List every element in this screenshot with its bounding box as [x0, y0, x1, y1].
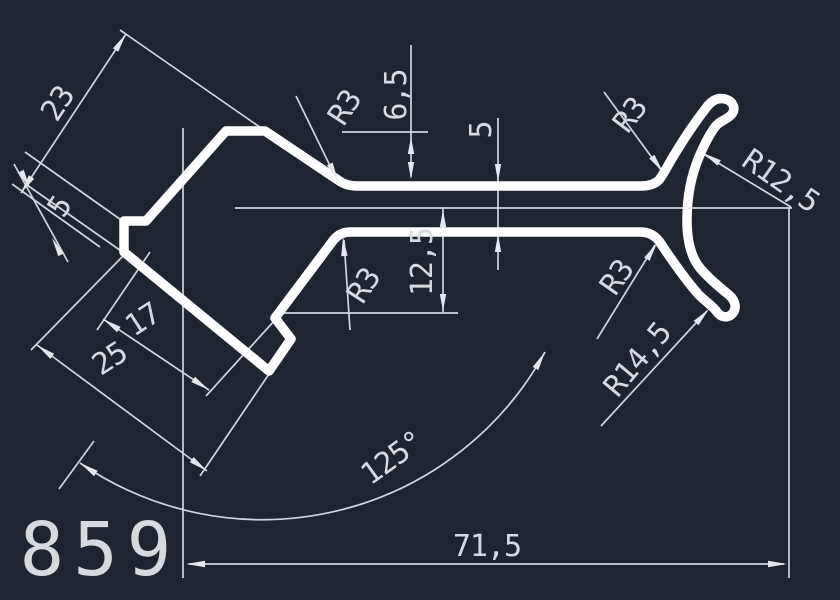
arrowhead — [644, 243, 657, 261]
arrowhead — [113, 34, 126, 52]
cad-drawing-canvas: 23 5 17 25 6,5 5 12,5 R3 R3 R12,5 R3 R3 … — [0, 0, 840, 600]
arrowhead — [694, 309, 709, 325]
arrowhead — [703, 153, 721, 166]
arrowhead — [190, 457, 207, 471]
arrowhead — [495, 164, 501, 181]
arrowhead — [495, 235, 501, 252]
arrowhead — [37, 345, 54, 359]
ext-line-25-right — [200, 374, 269, 476]
dim-label-71-5: 71,5 — [453, 529, 521, 564]
arrowhead — [191, 377, 209, 390]
dim-label-r3-top-left: R3 — [321, 84, 369, 132]
dim-label-12-5: 12,5 — [405, 228, 440, 296]
dim-label-6-5: 6,5 — [379, 69, 414, 120]
dim-label-23: 23 — [34, 80, 82, 128]
arrowhead — [533, 352, 545, 370]
dim-label-17: 17 — [119, 296, 167, 344]
dim-arc-125 — [80, 352, 545, 520]
arrowhead — [80, 463, 98, 476]
arrowhead — [649, 155, 663, 172]
dim-label-25: 25 — [86, 335, 134, 383]
arrowhead — [341, 237, 347, 256]
dim-label-r14-5: R14,5 — [597, 316, 679, 404]
arrowhead — [52, 238, 64, 256]
ext-line-25-left — [31, 255, 124, 350]
part-number: 859 — [20, 507, 181, 593]
arrowhead — [408, 137, 414, 154]
profile-drawing: 23 5 17 25 6,5 5 12,5 R3 R3 R12,5 R3 R3 … — [0, 0, 840, 600]
dim-label-5-top: 5 — [464, 121, 499, 138]
dim-label-r3-top-right: R3 — [606, 91, 654, 139]
arrowhead — [408, 162, 414, 179]
ext-line-5-b — [27, 185, 124, 253]
ext-line-125-leg — [59, 441, 94, 489]
dim-label-125-deg: 125° — [355, 424, 431, 492]
ext-line-23-upper — [120, 30, 264, 130]
arrowhead — [440, 210, 446, 227]
dim-line-23 — [21, 34, 126, 193]
dim-label-r3-bottom-left: R3 — [340, 262, 388, 310]
arrowhead — [186, 561, 205, 567]
dim-label-r3-bottom-right: R3 — [593, 254, 641, 302]
arrowhead — [440, 294, 446, 311]
arrowhead — [103, 319, 121, 332]
arrowhead — [768, 561, 787, 567]
